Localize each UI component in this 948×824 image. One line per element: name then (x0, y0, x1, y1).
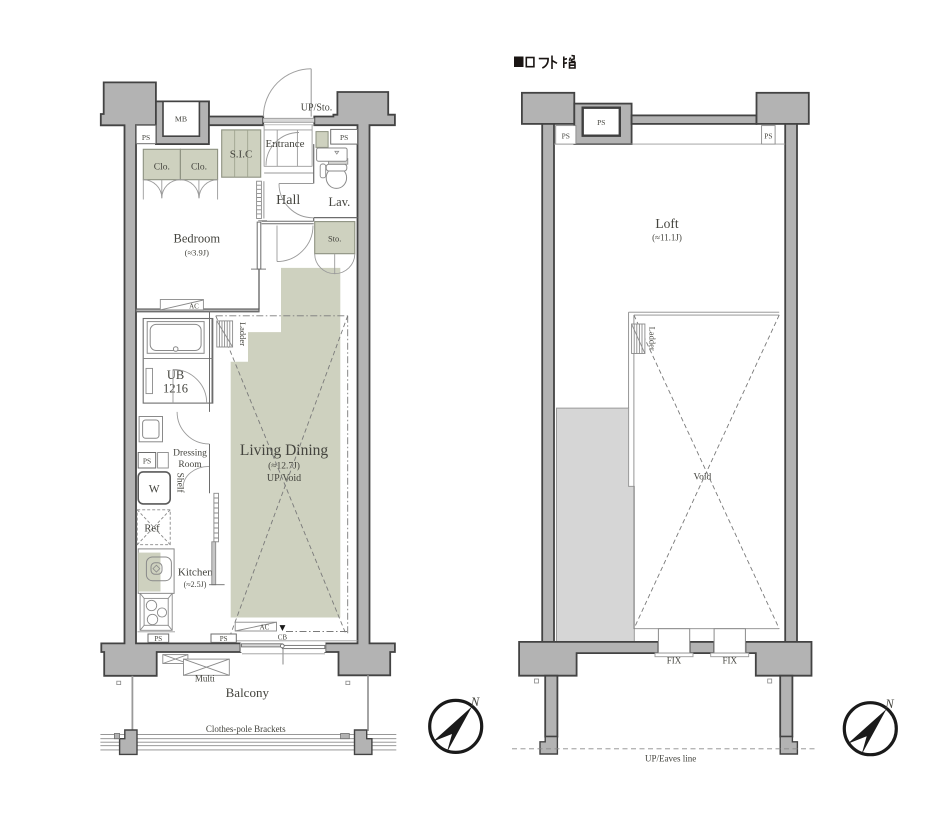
svg-text:PS: PS (764, 132, 772, 141)
svg-text:N: N (470, 695, 480, 709)
svg-text:AC: AC (260, 624, 270, 632)
svg-text:Dressing: Dressing (173, 449, 207, 459)
svg-text:UP/Sto.: UP/Sto. (301, 103, 332, 114)
svg-text:Balcony: Balcony (226, 685, 270, 700)
svg-text:Multi: Multi (195, 674, 216, 684)
svg-text:Living Dining: Living Dining (240, 442, 329, 459)
svg-text:Hall: Hall (276, 193, 300, 208)
svg-text:Bedroom: Bedroom (174, 232, 221, 246)
svg-text:(≈2.5J): (≈2.5J) (184, 580, 207, 589)
svg-text:PS: PS (597, 118, 605, 127)
svg-text:(≈11.1J): (≈11.1J) (652, 233, 682, 243)
svg-text:Ref: Ref (144, 524, 160, 535)
svg-text:Ladder: Ladder (238, 322, 248, 346)
svg-text:Sto.: Sto. (328, 234, 341, 244)
svg-text:FIX: FIX (667, 656, 682, 666)
svg-text:Loft: Loft (655, 216, 678, 231)
svg-text:Ladder: Ladder (648, 327, 658, 351)
svg-text:FIX: FIX (722, 656, 737, 666)
svg-text:PS: PS (220, 635, 228, 643)
svg-text:Clothes-pole Brackets: Clothes-pole Brackets (206, 724, 286, 734)
svg-text:N: N (884, 697, 894, 711)
svg-text:AC: AC (189, 303, 199, 311)
svg-text:S.I.C: S.I.C (230, 149, 253, 161)
svg-text:UP/Void: UP/Void (267, 473, 301, 484)
svg-text:Lav.: Lav. (329, 195, 351, 209)
svg-text:Void: Void (694, 473, 712, 483)
svg-text:Shelf: Shelf (175, 473, 186, 494)
svg-text:UP/Eaves line: UP/Eaves line (645, 754, 696, 764)
svg-text:Kitchen: Kitchen (178, 567, 213, 579)
svg-text:PS: PS (154, 635, 162, 643)
svg-text:PS: PS (340, 133, 348, 142)
svg-text:1216: 1216 (163, 382, 188, 396)
svg-text:W: W (149, 484, 160, 496)
svg-text:PS: PS (142, 133, 150, 142)
svg-text:PS: PS (143, 457, 151, 466)
svg-text:Clo.: Clo. (154, 163, 170, 173)
svg-text:CB: CB (278, 634, 288, 642)
svg-text:(≈3.9J): (≈3.9J) (185, 248, 209, 258)
svg-text:MB: MB (175, 115, 187, 124)
svg-text:PS: PS (562, 132, 570, 141)
svg-text:Clo.: Clo. (191, 163, 207, 173)
svg-text:(≈12.7J): (≈12.7J) (268, 461, 300, 472)
